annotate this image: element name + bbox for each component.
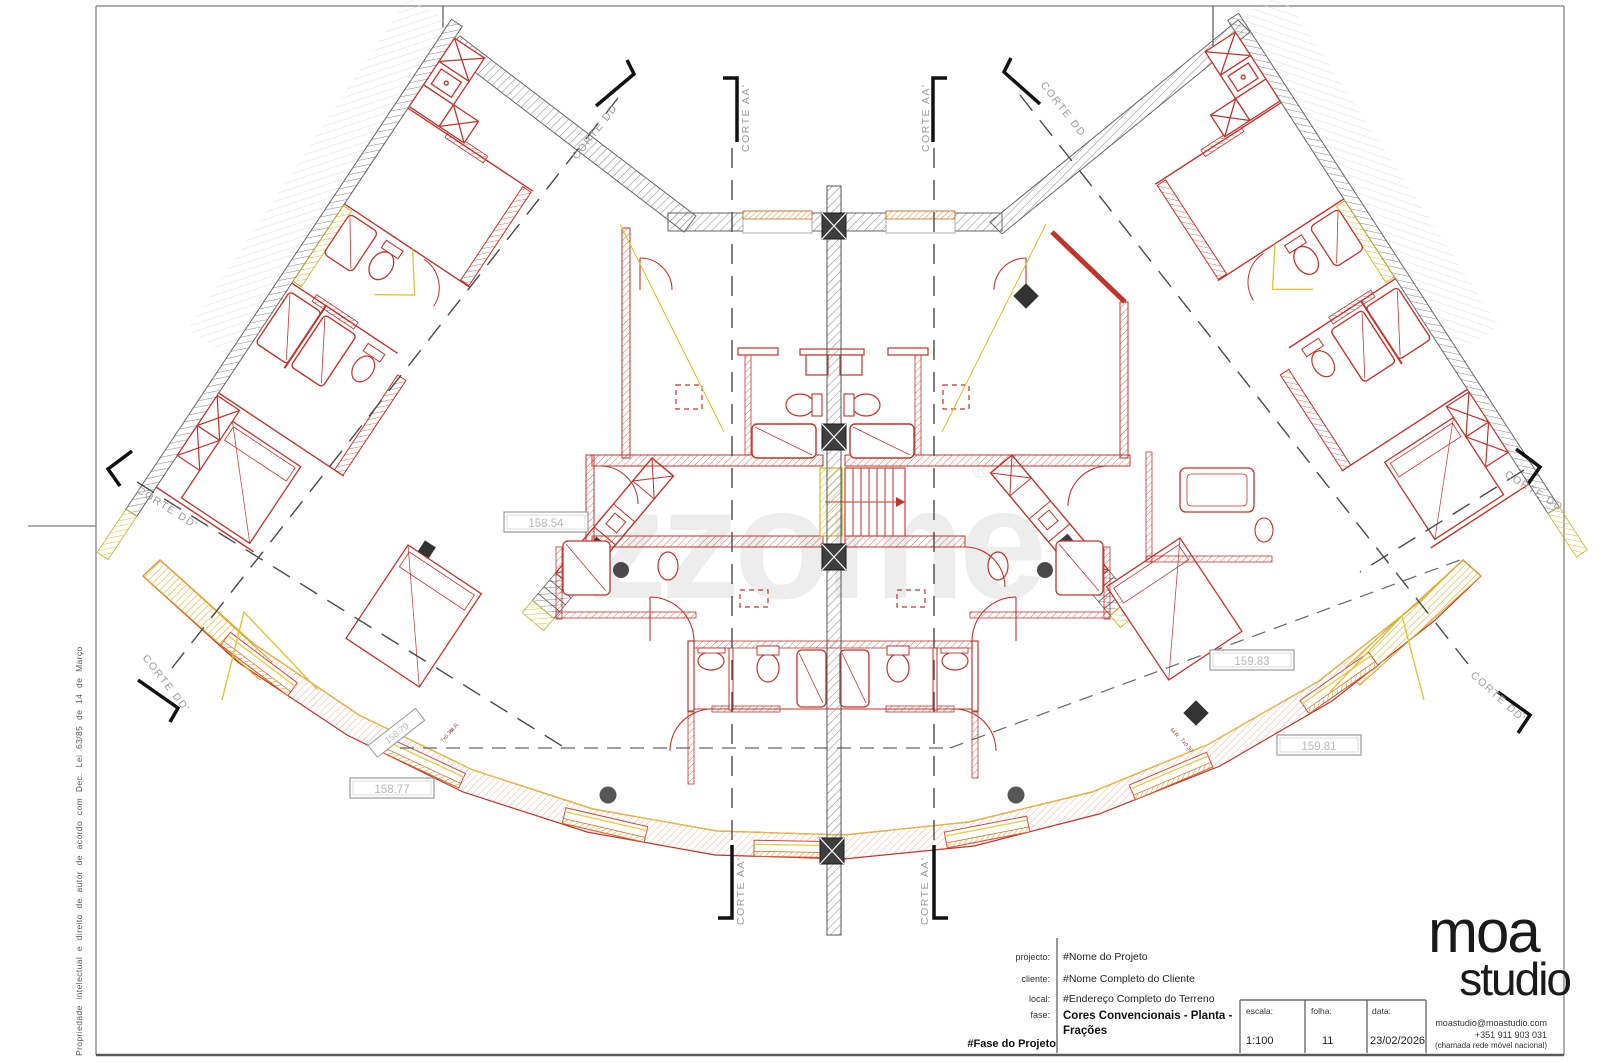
elevation-tag: 159.83 xyxy=(1210,650,1294,670)
phase-value-line2: Frações xyxy=(1063,1025,1107,1037)
logo-line2: studio xyxy=(1459,953,1570,1005)
corte-aa-bottom-right: CORTE AA' xyxy=(919,857,931,925)
corte-aa-top-right: CORTE AA' xyxy=(920,84,932,152)
title-block: projecto: cliente: local: fase: #Nome do… xyxy=(967,898,1570,1053)
core-xbox-3 xyxy=(822,544,846,570)
corte-aa-top-left: CORTE AA' xyxy=(740,84,752,152)
scale-label: escala: xyxy=(1246,1006,1273,1016)
note-mr-right: M.R. xyxy=(1168,727,1180,740)
phase-label: fase: xyxy=(1030,1010,1050,1020)
note-steps-left: 7x0.30 xyxy=(440,728,455,745)
contact-note: (chamada rede móvel nacional) xyxy=(1435,1041,1547,1050)
corte-dd2-bottom-left: CORTE DD' xyxy=(140,652,193,715)
outer-walls xyxy=(446,20,1250,234)
column-dot-left xyxy=(600,787,617,804)
column-diamond-1 xyxy=(1013,283,1038,308)
project-value: #Nome do Projeto xyxy=(1063,951,1148,963)
elevation-a: 158.54 xyxy=(528,518,564,530)
copyright-note: Propriedade intelectual e direito de aut… xyxy=(74,646,84,1056)
elevation-tag: 159.81 xyxy=(1277,735,1361,755)
project-label: projecto: xyxy=(1015,952,1050,962)
note-steps-right: 7x0.30 xyxy=(1178,737,1193,754)
client-value: #Nome Completo do Cliente xyxy=(1063,973,1195,985)
contact-phone: +351 911 903 031 xyxy=(1475,1030,1547,1040)
corte-dd2-bottom-right: CORTE DD' xyxy=(1468,669,1528,725)
site-label: local: xyxy=(1029,994,1050,1004)
stair-annotations: M.R. 7x0.30 M.R. 7x0.30 xyxy=(440,721,1194,754)
elevation-c: 159.81 xyxy=(1301,741,1336,753)
core-xbox-4 xyxy=(820,838,844,864)
elevation-tag: 158.77 xyxy=(350,778,434,798)
date-label: data: xyxy=(1372,1006,1391,1016)
corte-dd-top-right: CORTE DD xyxy=(1038,79,1088,139)
elevation-tag: 158.54 xyxy=(504,512,588,532)
floor-plan-svg: zzome ® xyxy=(0,0,1600,1062)
sheet-number-value: 11 xyxy=(1322,1035,1333,1047)
core-xbox-1 xyxy=(822,213,846,239)
client-label: cliente: xyxy=(1021,974,1050,984)
elevation-b: 159.83 xyxy=(1234,656,1269,668)
corte-aa-bottom-left: CORTE AA' xyxy=(735,857,747,925)
column-dot-right xyxy=(1008,787,1025,804)
date-value: 23/02/2026 xyxy=(1370,1035,1425,1047)
bed-left xyxy=(346,545,481,687)
contact-email: moastudio@moastudio.com xyxy=(1435,1018,1547,1028)
scale-value: 1:100 xyxy=(1246,1035,1274,1047)
site-value: #Endereço Completo do Terreno xyxy=(1063,993,1215,1005)
phase-name: #Fase do Projeto xyxy=(967,1038,1056,1050)
elevation-d: 158.77 xyxy=(374,784,409,796)
column-dot-bath-left xyxy=(613,562,629,578)
sheet-number-label: folha: xyxy=(1311,1006,1332,1016)
column-dot-bath-right xyxy=(1037,562,1053,578)
column-diamond-2 xyxy=(1183,700,1208,725)
phase-value-line1: Cores Convencionais - Planta - xyxy=(1063,1010,1233,1022)
drawing-sheet: zzome ® xyxy=(0,0,1600,1062)
moa-studio-logo: moa studio xyxy=(1428,898,1570,1005)
core-xbox-2 xyxy=(822,424,846,450)
